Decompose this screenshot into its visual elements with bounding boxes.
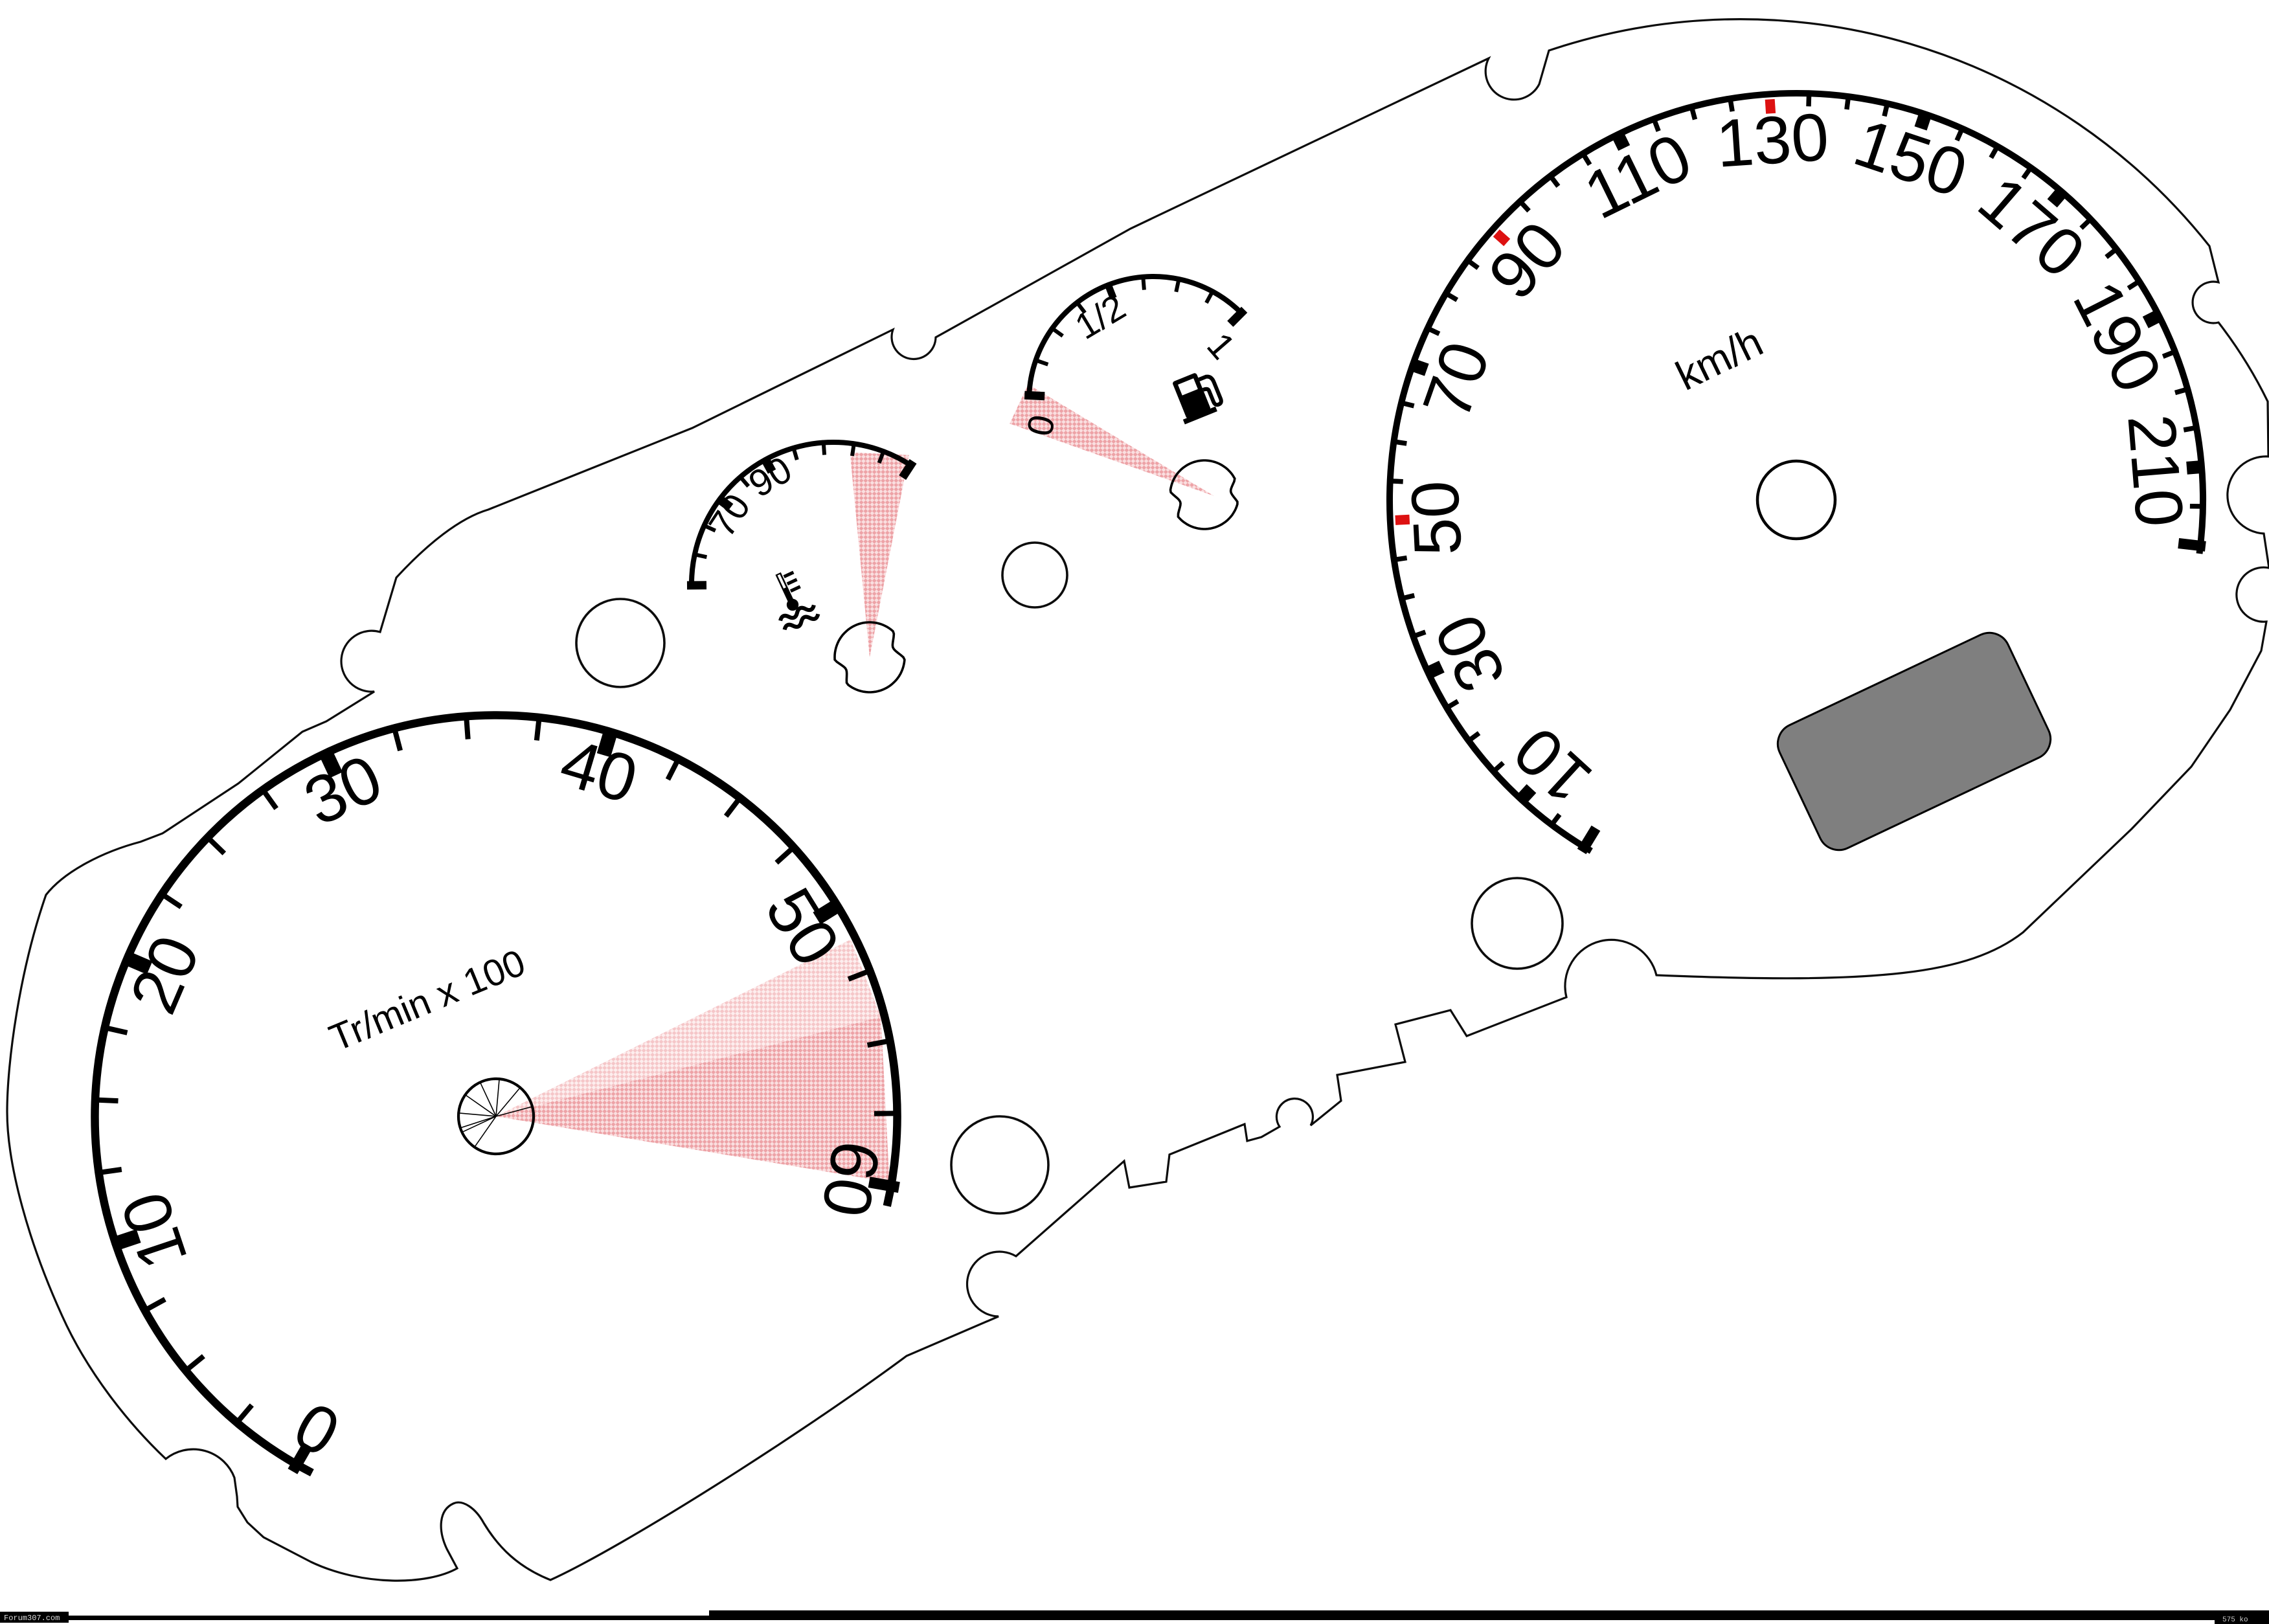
svg-text:130: 130 (1714, 100, 1831, 182)
svg-text:60: 60 (807, 1135, 894, 1222)
svg-text:50: 50 (1397, 479, 1476, 557)
svg-text:210: 210 (2113, 412, 2197, 530)
svg-text:Forum307.com: Forum307.com (4, 1614, 60, 1623)
svg-text:575 ko: 575 ko (2222, 1616, 2248, 1624)
